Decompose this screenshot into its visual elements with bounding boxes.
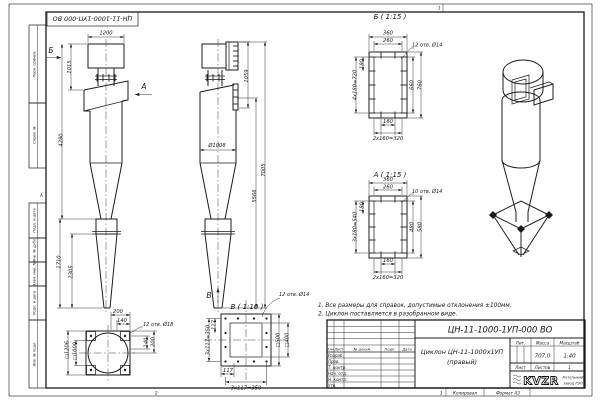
section-a-dim-bot-small: 160 bbox=[383, 258, 394, 264]
sheets-label: Листов bbox=[534, 365, 551, 370]
mass-label: Масса bbox=[536, 341, 550, 346]
view-v-dim-sq-outer: □500 bbox=[276, 332, 282, 348]
section-b-dim-bot: 2x160=320 bbox=[373, 136, 404, 142]
scale-label: Масштаб bbox=[560, 341, 580, 346]
dim-dia-1008: Ø1008 bbox=[207, 142, 226, 149]
dim-1015: 1015 bbox=[67, 60, 73, 74]
view-v-dim-left-small: 117 bbox=[212, 319, 218, 330]
drawing-sheet: 1 2 А 1 Копировал Формат А3 Перв. примен… bbox=[0, 0, 600, 400]
zone-mark-bottom: 1 bbox=[440, 391, 443, 396]
support-holes-note: 12 отв. Ø18 bbox=[143, 321, 173, 328]
note-line-2: 2. Циклон поставляется в разобранном вид… bbox=[318, 312, 458, 318]
margin-label-podp-data-2: Подп. и дата bbox=[33, 291, 37, 315]
support-view: 200 140 12 отв. Ø18 140 200 □1206 □1000 bbox=[65, 309, 174, 381]
col-doc: № докум. bbox=[353, 348, 372, 352]
front-view: 1200 1015 4280 1710 1305 Б А bbox=[47, 31, 152, 315]
support-dim-sq-out: □1206 bbox=[65, 340, 71, 359]
stamp-doc-number: ЦН-11-1000-1УП-000 ВО bbox=[53, 15, 133, 23]
view-arrow-a-label: А bbox=[140, 82, 146, 91]
margin-label-podp-data-1: Подп. и дата bbox=[33, 208, 37, 232]
zone-mark-bottom-left: 2 bbox=[155, 391, 158, 396]
section-a-dim-bot: 2x160=320 bbox=[373, 275, 404, 281]
dim-1710: 1710 bbox=[57, 255, 63, 269]
row-utv: Утв. bbox=[328, 383, 336, 388]
support-dim-right-140: 140 bbox=[144, 337, 150, 348]
view-v-dim-bot: 3x117=350 bbox=[231, 386, 262, 392]
doc-number: ЦН-11-1000-1УП-000 ВО bbox=[448, 325, 553, 335]
dim-1059: 1059 bbox=[244, 69, 250, 82]
section-b-dim-left-small: 180 bbox=[360, 58, 366, 69]
row-nachotd: Нач. отд. bbox=[328, 371, 347, 376]
section-a-holes-note: 10 отв. Ø14 bbox=[412, 188, 442, 195]
view-v-dim-sq-inner: □400 bbox=[285, 332, 291, 348]
top-stamp: ЦН-11-1000-1УП-000 ВО bbox=[47, 12, 138, 26]
margin-label-vzam-inv: Взам. инв. № bbox=[33, 262, 37, 287]
dim-1200: 1200 bbox=[99, 31, 113, 37]
sheets-value: 1 bbox=[568, 365, 571, 370]
sheet-label: Лист bbox=[514, 365, 526, 370]
section-a-dim-right-in: 480 bbox=[410, 221, 416, 232]
view-v-dim-bot-small: 117 bbox=[223, 368, 234, 374]
row-razrab: Разраб. bbox=[328, 353, 344, 358]
section-b-title: Б ( 1:15 ) bbox=[374, 13, 407, 21]
support-dim-140: 140 bbox=[117, 318, 128, 324]
lit-label: Лит. bbox=[515, 341, 526, 346]
col-data: Дата bbox=[401, 348, 411, 352]
section-a-dim-left: 3x180=540 bbox=[353, 211, 359, 242]
section-b: Б ( 1:15 ) 360 260 12 отв. Ø14 4x180=720… bbox=[353, 13, 443, 142]
title-block: ЦН-11-1000-1УП-000 ВО Циклон ЦН-11-1000х… bbox=[326, 320, 585, 388]
view-v-title: В ( 1:10 ) bbox=[231, 303, 264, 311]
section-b-dim-right-out: 760 bbox=[418, 79, 424, 90]
section-b-dim-360: 360 bbox=[383, 31, 394, 37]
view-v: В ( 1:10 ) 12 отв. Ø14 3x117=350 117 117… bbox=[204, 291, 309, 392]
row-prov: Пров. bbox=[328, 359, 340, 364]
view-arrow-v-label: В bbox=[206, 291, 211, 300]
margin-label-inv-dubl: Инв. № дубл. bbox=[33, 238, 37, 263]
org-line-1: Котельный bbox=[563, 376, 585, 380]
section-b-holes-note: 12 отв. Ø14 bbox=[412, 42, 442, 49]
dim-4280: 4280 bbox=[59, 133, 65, 147]
mass-value: 707,0 bbox=[535, 354, 551, 360]
side-view: Ø1008 1059 5566 7005 В bbox=[200, 39, 267, 314]
section-a: А ( 1:15 ) 360 260 10 отв. Ø14 3x180=540… bbox=[353, 171, 443, 281]
kvzr-logo: KVZR bbox=[523, 375, 559, 388]
row-tkontr: Т. контр. bbox=[328, 365, 347, 370]
col-podp: Подп. bbox=[385, 348, 396, 352]
section-a-dim-right-out: 580 bbox=[418, 221, 424, 232]
row-nkontr: Н. контр. bbox=[328, 377, 347, 382]
margin-label-perv-primen: Перв. примен. bbox=[33, 51, 37, 78]
section-a-dim-360: 360 bbox=[383, 177, 394, 183]
format-label: Формат А3 bbox=[496, 391, 520, 396]
dim-7005: 7005 bbox=[261, 163, 267, 177]
col-list: Лист bbox=[333, 348, 344, 352]
section-a-dim-left-small: 180 bbox=[360, 201, 366, 212]
title-line-2: (правый) bbox=[447, 358, 477, 366]
title-line-1: Циклон ЦН-11-1000х1УП bbox=[421, 348, 504, 356]
support-dim-200: 200 bbox=[113, 309, 124, 315]
zone-mark-top: 1 bbox=[438, 6, 441, 11]
support-dim-right-200: 200 bbox=[151, 336, 157, 347]
section-b-dim-bot-small: 160 bbox=[383, 119, 394, 125]
scale-value: 1:40 bbox=[563, 354, 576, 360]
section-b-dim-left: 4x180=720 bbox=[353, 69, 359, 100]
margin-label-sprav: Справ. № bbox=[33, 126, 37, 144]
org-line-2: завод РЭП bbox=[563, 382, 583, 386]
iso-view bbox=[489, 60, 553, 257]
engineering-drawing: 1 2 А 1 Копировал Формат А3 Перв. примен… bbox=[0, 0, 600, 400]
section-b-dim-right-in: 660 bbox=[410, 79, 416, 90]
section-a-dim-260: 260 bbox=[383, 185, 394, 191]
section-b-dim-260: 260 bbox=[383, 38, 394, 44]
dim-5566: 5566 bbox=[252, 189, 258, 203]
zone-mark-left: А bbox=[39, 193, 43, 198]
notes: 1. Все размеры для справок, допустимые о… bbox=[318, 303, 512, 318]
margin-label-inv-podl: Инв. № подл. bbox=[33, 342, 37, 367]
support-dim-sq-in: □1000 bbox=[73, 341, 79, 360]
left-margin-fields: Перв. примен. Справ. № Подп. и дата Инв.… bbox=[29, 25, 46, 388]
view-arrow-b-label: Б bbox=[48, 46, 53, 55]
view-v-holes-note: 12 отв. Ø14 bbox=[279, 291, 309, 298]
copied-label: Копировал bbox=[453, 391, 477, 396]
dim-1305: 1305 bbox=[69, 265, 75, 279]
note-line-1: 1. Все размеры для справок, допустимые о… bbox=[318, 303, 512, 309]
